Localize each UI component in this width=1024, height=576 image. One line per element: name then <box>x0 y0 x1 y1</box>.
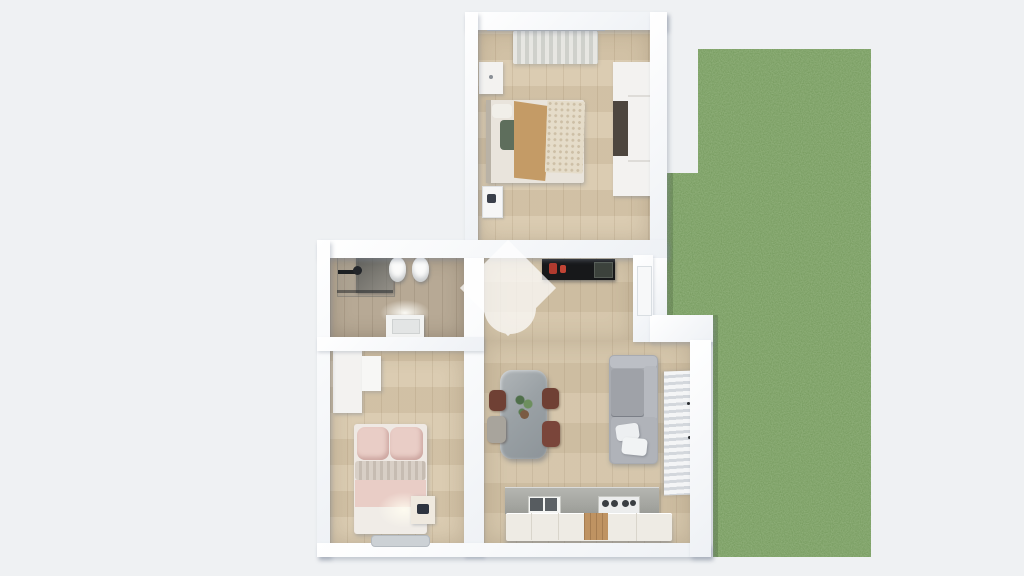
cooktop-burner-1 <box>602 500 609 507</box>
bed2-pillow-left <box>357 427 389 460</box>
bed2-pillow-right <box>390 427 423 460</box>
wall-living-top <box>317 240 667 258</box>
door-threshold <box>371 535 430 547</box>
wall-bedroom-left <box>465 12 478 258</box>
vanity-basin <box>392 319 420 334</box>
cooktop-burner-3 <box>622 500 629 507</box>
dining-chair-2 <box>487 416 506 443</box>
tv-decor-red-1 <box>549 263 557 274</box>
nightstand-item <box>417 504 429 514</box>
shower-glass-panel <box>356 255 393 293</box>
kitchen-sink-basin-right <box>545 498 557 511</box>
sofa-backrest <box>644 366 657 420</box>
table-plant-pot <box>520 410 529 419</box>
sofa-seat-cushion <box>611 369 644 417</box>
kitchen-wood-insert <box>584 513 608 540</box>
bed-pillow-white <box>492 104 512 118</box>
sofa-pillow-2 <box>621 437 648 457</box>
window-curtain <box>513 31 598 64</box>
cabinet-seam-1 <box>531 513 532 540</box>
cooktop-burner-4 <box>630 500 636 506</box>
wall-bathroom-bottom <box>317 337 484 351</box>
garden-door-recess <box>637 266 652 316</box>
bed-headboard <box>486 100 491 183</box>
wall-divider <box>464 258 484 557</box>
bidet <box>412 257 429 282</box>
dining-chair-4 <box>542 421 560 447</box>
bed2-knit-band <box>355 461 426 480</box>
wall-bedroom-top <box>465 12 667 30</box>
cooktop-burner-2 <box>611 500 618 507</box>
wardrobe-second <box>333 350 362 413</box>
wall-right-lower <box>690 340 711 557</box>
wall-right-step <box>650 315 713 342</box>
tv-flat-screen <box>594 262 613 278</box>
kitchen-sink-basin-left <box>530 498 543 511</box>
wall-bedroom-right <box>650 12 667 258</box>
floor-plan-stage <box>0 0 1024 576</box>
dining-chair-1 <box>489 390 506 411</box>
tv-decor-red-2 <box>560 265 566 273</box>
toilet <box>389 257 406 282</box>
wardrobe-open-section <box>613 101 628 156</box>
cabinet-seam-3 <box>636 513 637 541</box>
cabinet-seam-2 <box>558 513 559 540</box>
dining-chair-3 <box>542 388 559 409</box>
bed-throw-waffle <box>545 100 585 173</box>
shower-head <box>353 266 362 275</box>
wall-main-left <box>317 240 330 557</box>
nightstand-handle <box>489 75 493 79</box>
wall-shelf <box>362 356 381 391</box>
wall-panel-icon <box>487 194 496 203</box>
shower-glass-edge <box>337 290 393 293</box>
